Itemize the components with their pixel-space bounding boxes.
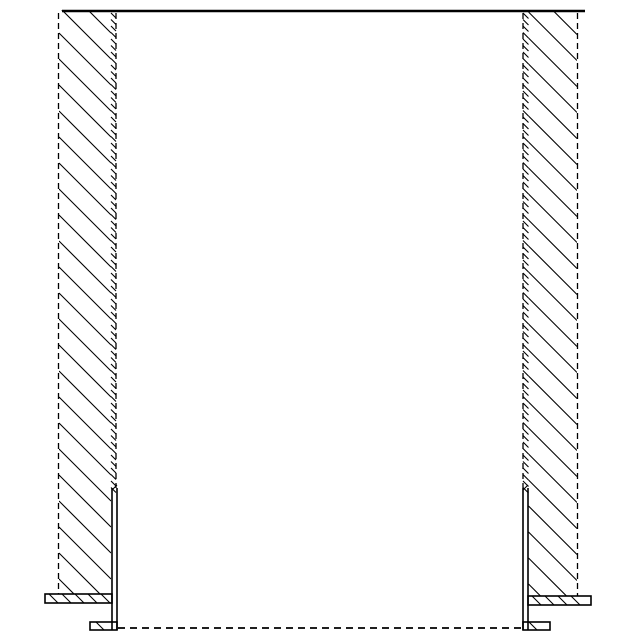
left-edge-angle-anchor-flange xyxy=(45,594,112,603)
left-edge-angle-upright xyxy=(112,485,117,630)
right-edge-angle-foot xyxy=(523,622,550,630)
right-wall-face-tick-strip xyxy=(523,13,529,493)
right-wall-hatch xyxy=(529,0,578,633)
right-edge-angle-anchor-flange xyxy=(528,596,591,605)
left-edge-angle xyxy=(45,485,117,630)
right-edge-angle xyxy=(523,485,591,630)
left-wall-hatch xyxy=(59,0,111,631)
cad-section-drawing xyxy=(0,0,640,640)
left-wall-face-tick-strip xyxy=(111,13,116,493)
left-wall xyxy=(59,0,117,631)
drawing-canvas xyxy=(0,0,640,640)
right-edge-angle-upright xyxy=(523,485,528,630)
left-edge-angle-foot xyxy=(90,622,117,630)
right-wall xyxy=(523,0,578,633)
